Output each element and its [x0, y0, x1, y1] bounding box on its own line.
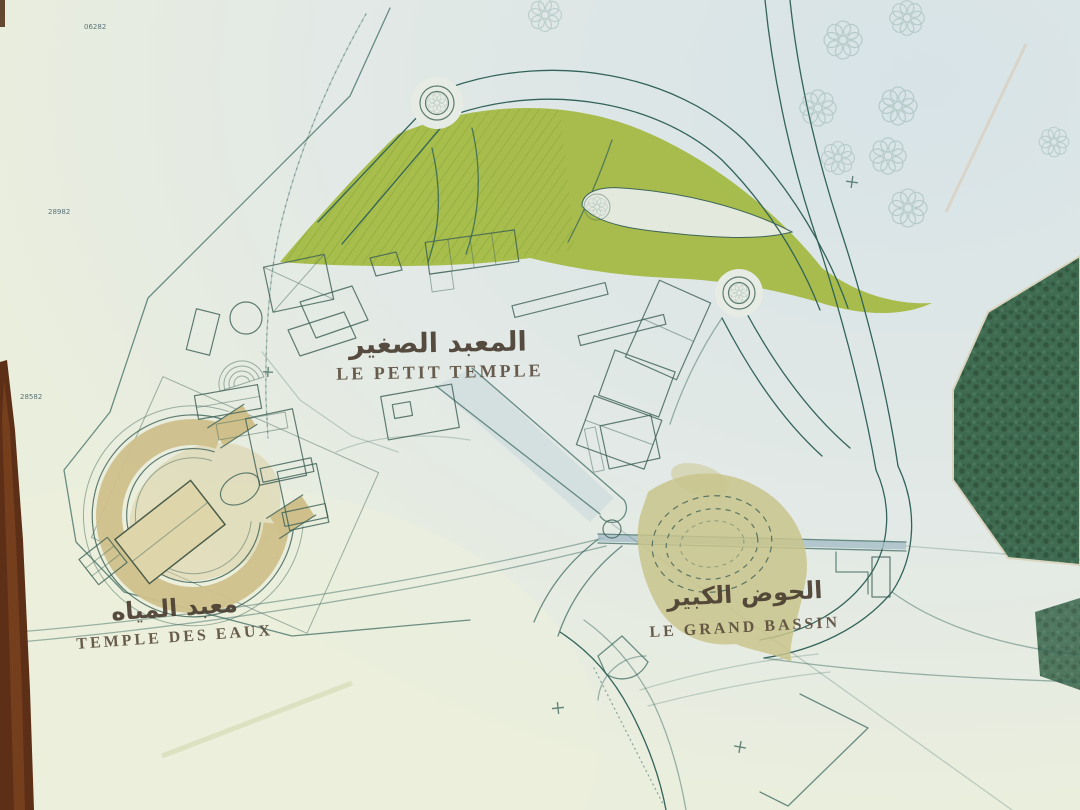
- ref-number: 28582: [20, 393, 42, 401]
- petit-temple-label-fr: LE PETIT TEMPLE: [336, 360, 544, 384]
- ref-number: 06282: [84, 23, 106, 31]
- roundabout-junction: [715, 269, 763, 317]
- site-plan-drawing: المعبد الصغير LE PETIT TEMPLE معبد الميا…: [0, 0, 1080, 810]
- ref-number: 28982: [48, 208, 70, 216]
- site-map-photo: المعبد الصغير LE PETIT TEMPLE معبد الميا…: [0, 0, 1080, 810]
- forest-area-small: [1035, 598, 1080, 690]
- petit-temple-label-ar: المعبد الصغير: [347, 326, 527, 360]
- roundabout-top: [411, 77, 463, 129]
